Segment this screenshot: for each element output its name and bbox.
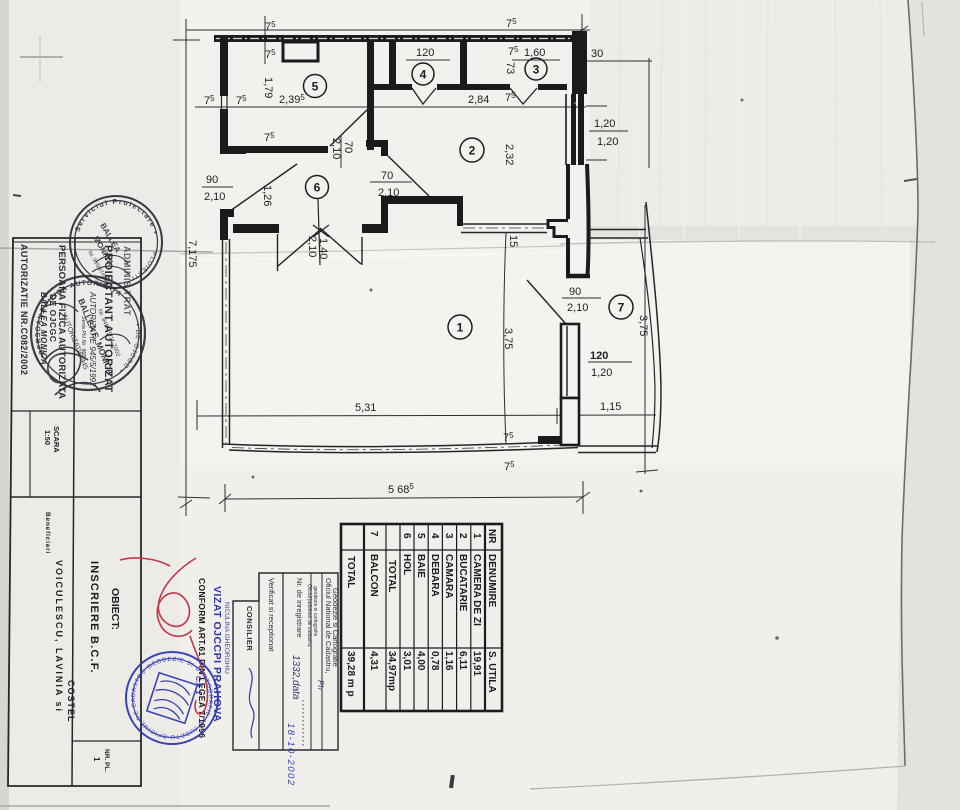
svg-text:2,84: 2,84 [468,94,489,106]
svg-text:1,60: 1,60 [524,47,545,59]
svg-text:Verificat si receptionat: Verificat si receptionat [267,578,276,652]
svg-text:7,175: 7,175 [186,240,198,268]
svg-text:1,15: 1,15 [600,401,621,413]
svg-text:90: 90 [569,286,581,298]
svg-text:2: 2 [469,144,476,158]
svg-text:Beneficiari: Beneficiari [44,512,51,554]
svg-text:3,01: 3,01 [401,651,412,671]
svg-text:5: 5 [415,533,426,539]
svg-text:BUCATARIE: BUCATARIE [457,554,468,612]
svg-text:2: 2 [457,533,468,539]
svg-text:3: 3 [533,63,540,77]
svg-text:2,10: 2,10 [306,236,318,257]
svg-text:BALCON: BALCON [368,554,379,597]
svg-text:70: 70 [342,141,354,153]
svg-text:1,20: 1,20 [594,118,615,130]
svg-text:SCARA: SCARA [52,426,61,453]
svg-text:AUTORIZATIE NR.C082/2002: AUTORIZATIE NR.C082/2002 [19,244,29,375]
svg-text:4,00: 4,00 [415,651,426,671]
svg-text:COSTEL: COSTEL [66,680,76,723]
svg-text:5,31: 5,31 [355,402,376,414]
svg-text:6,11: 6,11 [457,651,468,670]
svg-text:7: 7 [368,531,379,537]
svg-text:geodezie si cartografie: geodezie si cartografie [312,586,318,637]
svg-text:CONSILIER: CONSILIER [245,606,254,651]
svg-text:1,20: 1,20 [597,136,618,148]
svg-text:73: 73 [504,62,516,74]
svg-text:TOTAL: TOTAL [386,560,397,592]
svg-text:Nr. de inregistrare: Nr. de inregistrare [295,578,304,638]
svg-text:DEBARA: DEBARA [429,554,440,597]
svg-text:6: 6 [314,181,321,195]
svg-text:1,26: 1,26 [261,185,273,206]
svg-text:TOTAL: TOTAL [345,556,356,588]
svg-text:C.F. 1: C.F. 1 [194,676,201,694]
svg-text:6: 6 [401,533,412,539]
svg-text:120: 120 [590,350,608,362]
svg-text:Ph: Ph [316,680,325,690]
svg-text:NICULINA GHEORGHIU: NICULINA GHEORGHIU [223,602,230,674]
svg-text:19,91: 19,91 [471,651,482,676]
svg-text:1,16: 1,16 [443,651,454,671]
svg-text:1:50: 1:50 [43,430,52,445]
svg-text:1: 1 [471,533,482,539]
svg-text:70: 70 [381,170,393,182]
svg-text:30: 30 [591,48,603,60]
svg-text:39,28 m p: 39,28 m p [345,651,356,697]
svg-text:OBIECT:: OBIECT: [109,588,121,630]
svg-text:1,20: 1,20 [591,367,612,379]
svg-text:0,78: 0,78 [429,651,440,671]
svg-text:2,32: 2,32 [503,144,515,165]
svg-text:DENUMIRE: DENUMIRE [486,554,497,608]
svg-text:VOICULESCU, LAVINIA si: VOICULESCU, LAVINIA si [54,560,64,713]
svg-text:34,97mp: 34,97mp [386,651,397,691]
svg-text:1: 1 [92,757,101,762]
svg-text:2,10: 2,10 [567,302,588,314]
svg-text:2,10: 2,10 [378,187,399,199]
svg-text:NR. PL.: NR. PL. [103,749,110,772]
svg-text:90: 90 [206,174,218,186]
svg-text:3: 3 [443,533,454,539]
svg-text:1332,data: 1332,data [290,655,301,700]
svg-text:4: 4 [429,533,440,539]
svg-text:2,10: 2,10 [204,191,225,203]
svg-text:INSCRIERE B.C.F.: INSCRIERE B.C.F. [88,561,100,674]
svg-text:4: 4 [420,68,427,82]
svg-text:HOL: HOL [401,554,412,575]
svg-text:2,10: 2,10 [330,138,342,159]
svg-text:CAMARA: CAMARA [443,554,454,598]
svg-text:S. UTILA: S. UTILA [486,651,497,693]
svg-text:18-10-2002: 18-10-2002 [285,723,296,787]
svg-text:3,75: 3,75 [637,315,649,336]
svg-text:1: 1 [457,321,464,335]
svg-text:NR: NR [486,529,497,544]
svg-text:120: 120 [416,47,434,59]
svg-text:1,79: 1,79 [262,77,274,98]
svg-text:7: 7 [618,301,625,315]
svg-text:Oficiul judetean de cadastru,: Oficiul judetean de cadastru, [306,584,312,647]
svg-text:15: 15 [507,235,519,247]
svg-text:BAIE: BAIE [415,554,426,578]
svg-text:Geodezie si Cartografie: Geodezie si Cartografie [331,588,340,667]
svg-text:4,31: 4,31 [368,651,379,671]
svg-text:3,75: 3,75 [502,328,514,349]
svg-text:CAMERA DE ZI: CAMERA DE ZI [471,554,482,626]
svg-text:5: 5 [312,80,319,94]
